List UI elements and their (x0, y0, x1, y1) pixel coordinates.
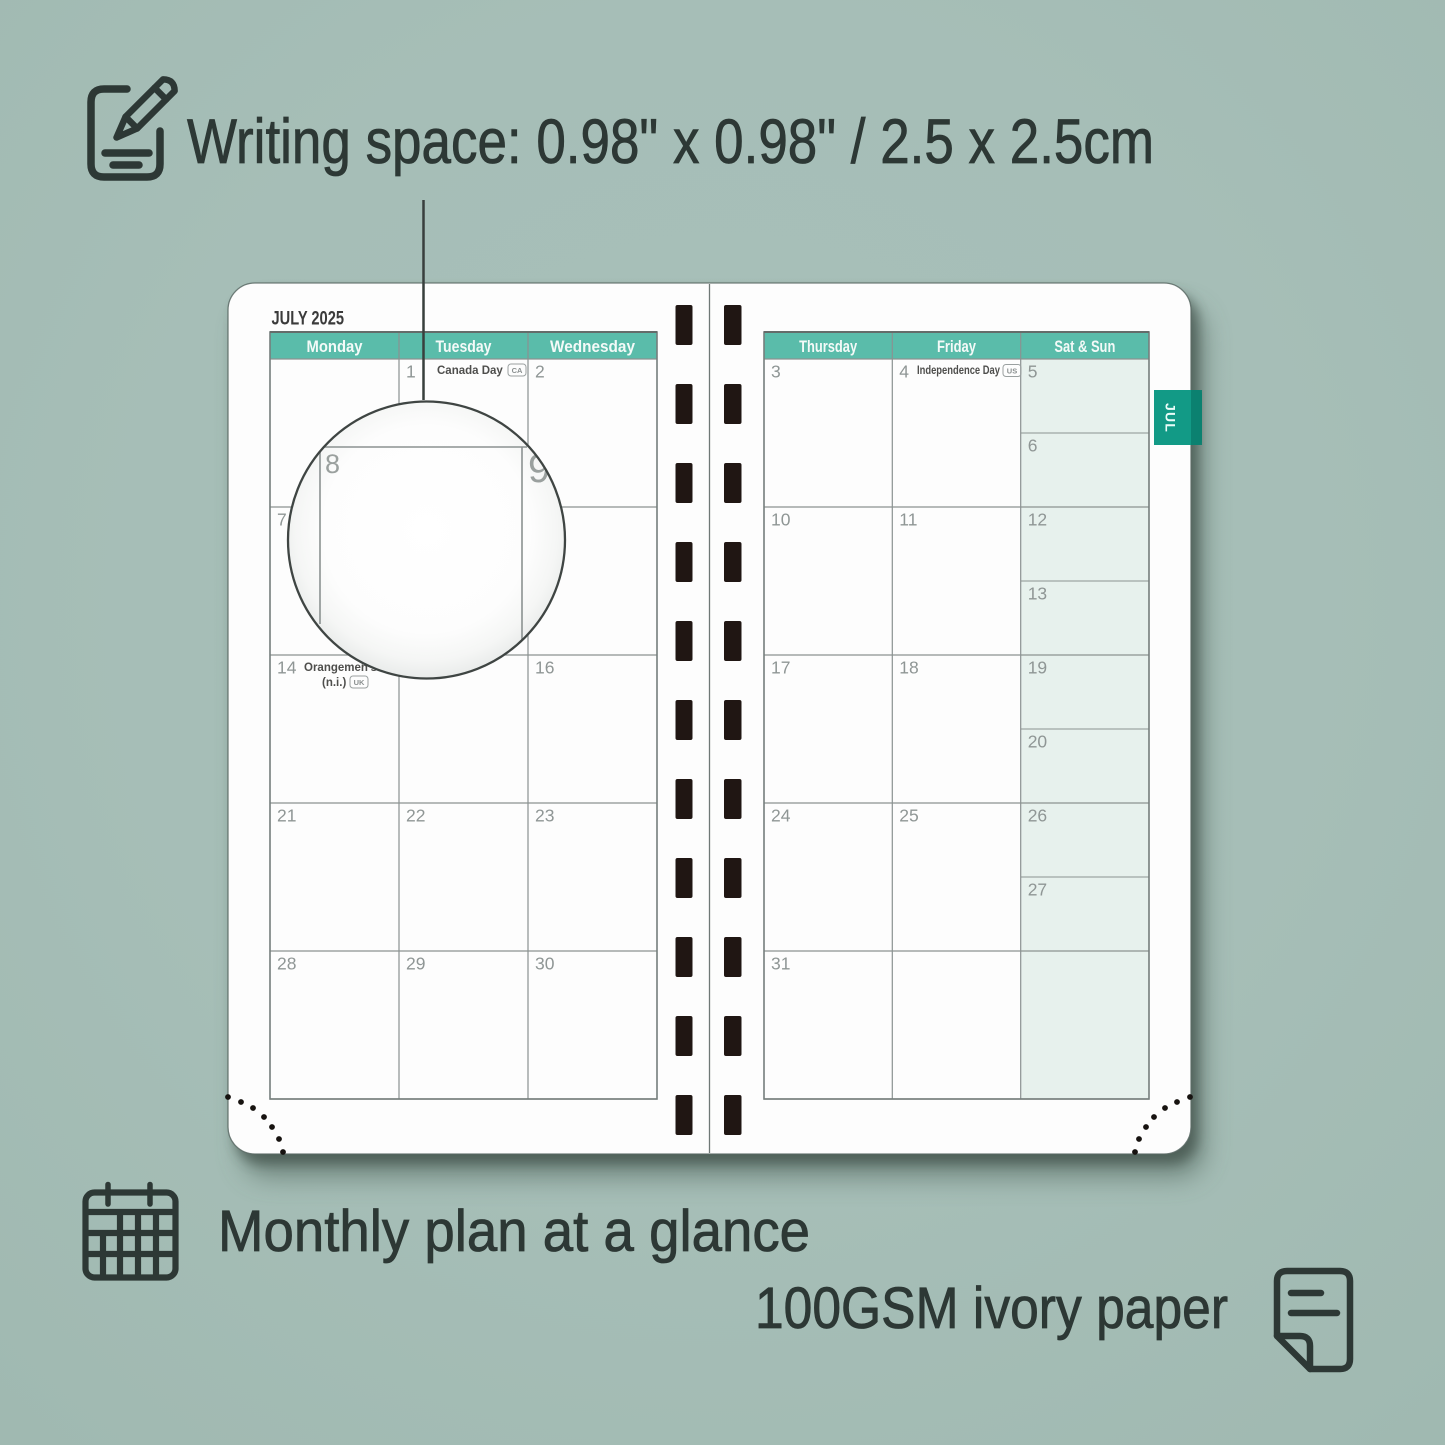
svg-text:Wednesday: Wednesday (550, 338, 636, 356)
svg-text:CA: CA (512, 366, 523, 375)
svg-text:16: 16 (535, 658, 554, 678)
svg-text:3: 3 (771, 362, 781, 382)
svg-text:7: 7 (277, 510, 287, 530)
svg-text:Tuesday: Tuesday (436, 338, 493, 356)
svg-text:29: 29 (406, 954, 425, 974)
svg-text:Monday: Monday (307, 338, 364, 356)
svg-text:JUL: JUL (1163, 403, 1179, 433)
svg-text:12: 12 (1028, 510, 1047, 530)
svg-text:24: 24 (771, 806, 791, 826)
svg-text:31: 31 (771, 954, 790, 974)
svg-text:Monthly plan at a glance: Monthly plan at a glance (218, 1199, 810, 1264)
svg-text:Thursday: Thursday (799, 338, 858, 356)
svg-text:20: 20 (1028, 732, 1048, 752)
svg-text:23: 23 (535, 806, 554, 826)
svg-text:26: 26 (1028, 806, 1047, 826)
svg-text:100GSM ivory paper: 100GSM ivory paper (755, 1276, 1228, 1341)
svg-text:2: 2 (535, 362, 545, 382)
svg-text:21: 21 (277, 806, 296, 826)
svg-text:27: 27 (1028, 880, 1047, 900)
svg-text:Independence Day: Independence Day (917, 365, 1000, 377)
svg-text:(n.i.): (n.i.) (322, 677, 346, 689)
svg-text:4: 4 (899, 362, 909, 382)
svg-text:17: 17 (771, 658, 790, 678)
svg-text:JULY 2025: JULY 2025 (272, 309, 345, 330)
svg-text:22: 22 (406, 806, 425, 826)
svg-text:10: 10 (771, 510, 791, 530)
svg-text:19: 19 (1028, 658, 1047, 678)
svg-text:13: 13 (1028, 584, 1047, 604)
svg-text:30: 30 (535, 954, 555, 974)
svg-text:Writing space: 0.98" x 0.98" /: Writing space: 0.98" x 0.98" / 2.5 x 2.5… (187, 107, 1154, 177)
svg-text:8: 8 (325, 449, 340, 479)
svg-text:Sat & Sun: Sat & Sun (1054, 338, 1115, 356)
svg-text:US: US (1007, 367, 1017, 376)
svg-text:6: 6 (1028, 436, 1038, 456)
svg-text:18: 18 (899, 658, 918, 678)
svg-text:11: 11 (899, 510, 917, 530)
svg-text:25: 25 (899, 806, 918, 826)
svg-text:Friday: Friday (937, 338, 977, 356)
svg-text:UK: UK (354, 678, 365, 687)
svg-text:28: 28 (277, 954, 296, 974)
svg-text:14: 14 (277, 658, 297, 678)
svg-text:Canada Day: Canada Day (437, 365, 503, 377)
svg-text:5: 5 (1028, 362, 1038, 382)
svg-text:1: 1 (406, 362, 416, 382)
